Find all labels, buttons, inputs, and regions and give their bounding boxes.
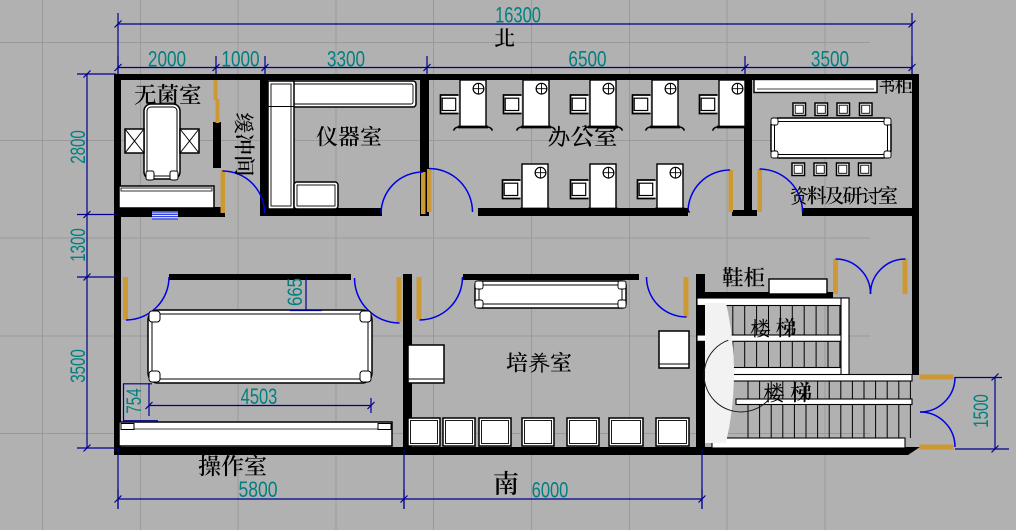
svg-text:2000: 2000	[148, 48, 186, 73]
svg-text:4503: 4503	[241, 385, 278, 410]
svg-text:3300: 3300	[327, 48, 365, 73]
svg-text:2800: 2800	[65, 130, 89, 164]
svg-text:5800: 5800	[238, 478, 277, 502]
svg-text:754: 754	[121, 388, 145, 413]
svg-text:3500: 3500	[811, 48, 849, 73]
svg-text:1000: 1000	[221, 48, 259, 73]
svg-text:6500: 6500	[568, 48, 606, 73]
svg-text:1300: 1300	[65, 228, 89, 262]
svg-text:6000: 6000	[532, 478, 569, 503]
svg-text:3500: 3500	[65, 349, 89, 383]
svg-text:665: 665	[284, 278, 307, 306]
svg-text:16300: 16300	[495, 3, 541, 28]
svg-text:1500: 1500	[968, 394, 992, 428]
